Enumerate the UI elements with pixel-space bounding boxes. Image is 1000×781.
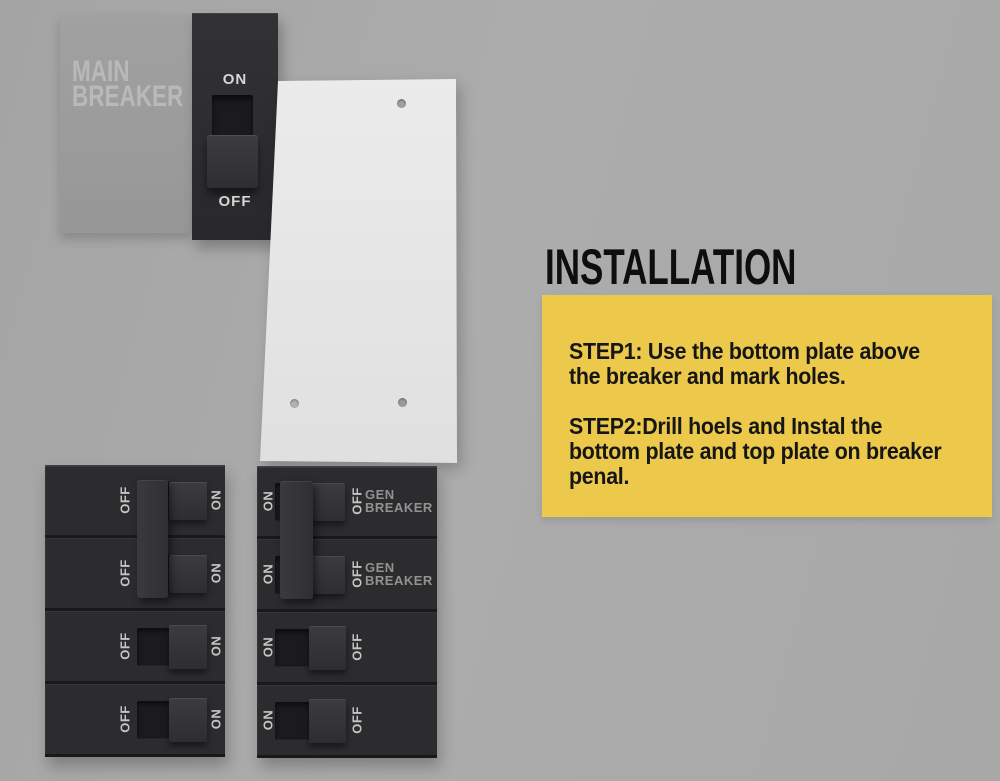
breaker-row: ON OFF: [257, 612, 437, 685]
off-label: OFF: [350, 706, 365, 734]
plate-hole-bottom-right: [398, 398, 407, 407]
product-infographic: MAIN BREAKER ON OFF OFF ON OFF ON: [0, 0, 1000, 781]
toggle-knob: [169, 482, 207, 520]
on-label: ON: [209, 636, 224, 657]
off-label: OFF: [350, 487, 365, 515]
breaker-row: OFF ON: [45, 684, 225, 757]
toggle-knob: [312, 556, 345, 594]
breaker-row: OFF ON: [45, 611, 225, 684]
off-label: OFF: [118, 632, 133, 660]
toggle-knob: [169, 625, 207, 669]
toggle-knob: [312, 483, 345, 521]
on-label: ON: [261, 710, 276, 731]
toggle-knob: [309, 699, 346, 743]
on-label: ON: [261, 564, 276, 585]
off-label: OFF: [350, 633, 365, 661]
installation-title: INSTALLATION: [545, 238, 796, 296]
breaker-row: OFF ON: [45, 538, 225, 611]
toggle-knob: [169, 698, 207, 742]
main-breaker-label: MAIN BREAKER: [72, 59, 183, 109]
handle-tie-bar: [280, 481, 313, 599]
on-label: ON: [209, 490, 224, 511]
toggle-knob: [309, 626, 346, 670]
on-label: ON: [261, 637, 276, 658]
off-label: OFF: [350, 560, 365, 588]
on-label: ON: [209, 709, 224, 730]
bottom-plate-face: [258, 78, 458, 464]
installation-steps-box: STEP1: Use the bottom plate above the br…: [542, 295, 992, 517]
breaker-row: OFF ON: [45, 465, 225, 538]
main-breaker-face: MAIN BREAKER: [60, 15, 192, 233]
off-label: OFF: [118, 559, 133, 587]
plate-hole-top: [397, 99, 406, 108]
off-label: OFF: [118, 486, 133, 514]
toggle-knob: [169, 555, 207, 593]
installation-steps-text: STEP1: Use the bottom plate above the br…: [569, 339, 962, 489]
bottom-plate: [258, 78, 458, 464]
main-toggle-knob: [207, 135, 258, 188]
main-toggle-slot: [212, 95, 253, 138]
breaker-panel-left: OFF ON OFF ON OFF ON OFF ON: [45, 465, 225, 757]
off-label: OFF: [118, 705, 133, 733]
gen-breaker-tag: GEN BREAKER: [365, 488, 433, 514]
breaker-panel-right: ON OFF GEN BREAKER ON OFF GEN BREAKER ON…: [257, 466, 437, 758]
on-label: ON: [261, 491, 276, 512]
gen-breaker-tag: GEN BREAKER: [365, 561, 433, 587]
plate-hole-bottom-left: [290, 399, 299, 408]
handle-tie-bar: [137, 480, 168, 598]
main-breaker-unit: MAIN BREAKER ON OFF: [60, 13, 278, 240]
breaker-row: ON OFF: [257, 685, 437, 758]
on-label: ON: [209, 563, 224, 584]
step1-text: STEP1: Use the bottom plate above the br…: [569, 339, 962, 389]
step2-text: STEP2:Drill hoels and Instal the bottom …: [569, 414, 962, 489]
